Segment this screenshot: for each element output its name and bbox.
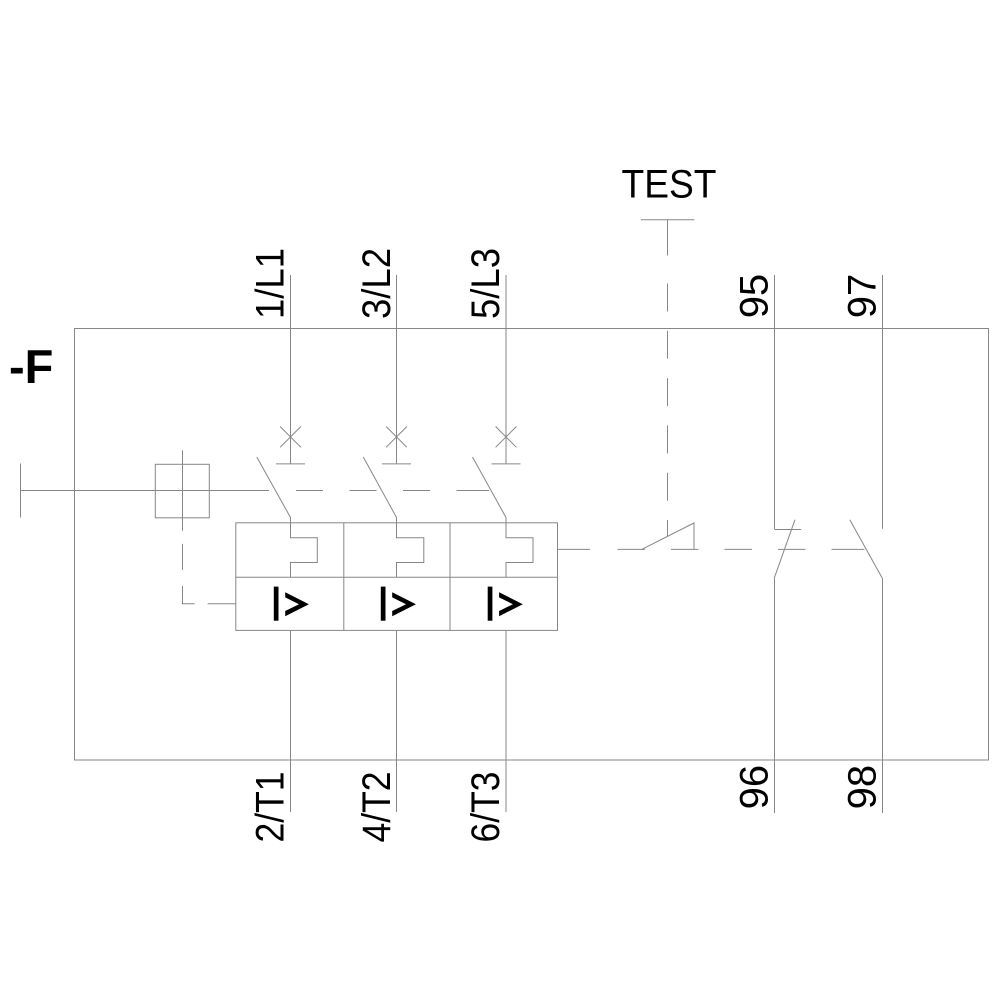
svg-text:-F: -F bbox=[9, 340, 53, 393]
svg-text:2/T1: 2/T1 bbox=[249, 772, 293, 843]
svg-text:5/L3: 5/L3 bbox=[464, 248, 508, 319]
svg-text:6/T3: 6/T3 bbox=[464, 772, 508, 843]
svg-text:TEST: TEST bbox=[622, 162, 717, 206]
svg-text:97: 97 bbox=[841, 274, 885, 319]
svg-text:1/L1: 1/L1 bbox=[249, 248, 293, 319]
svg-text:95: 95 bbox=[732, 274, 776, 319]
svg-text:96: 96 bbox=[732, 765, 776, 810]
svg-text:98: 98 bbox=[841, 765, 885, 810]
svg-text:3/L2: 3/L2 bbox=[355, 248, 399, 319]
svg-text:4/T2: 4/T2 bbox=[355, 772, 399, 843]
